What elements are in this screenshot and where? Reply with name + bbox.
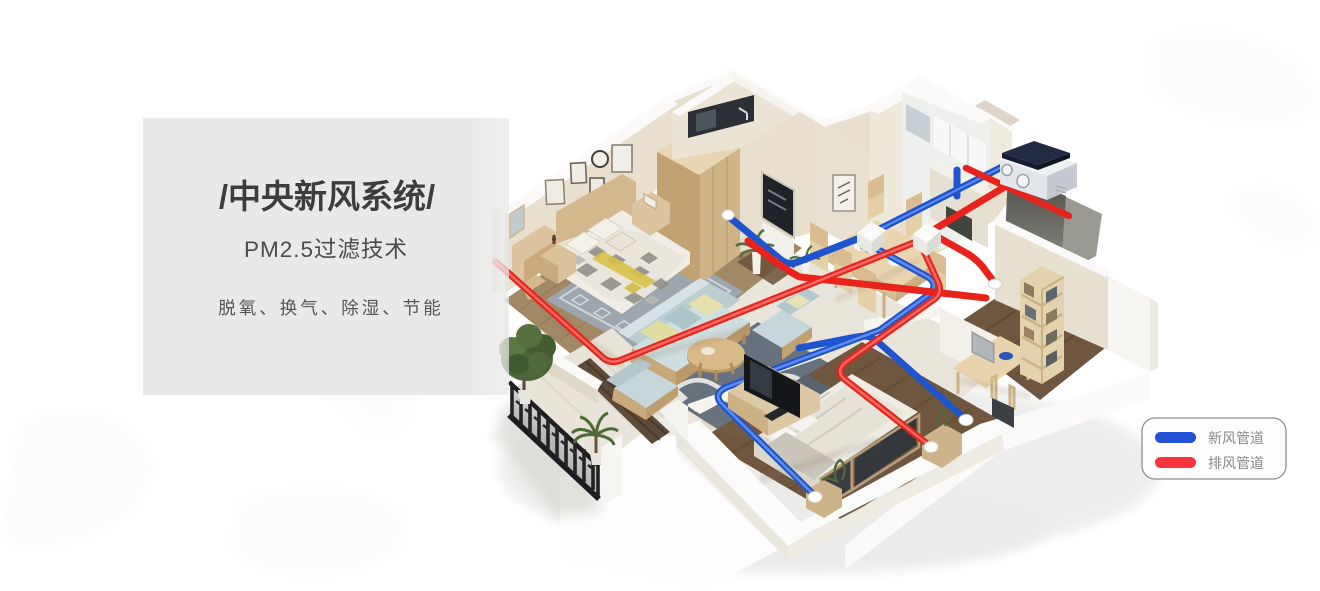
svg-text:排风管道: 排风管道 xyxy=(1208,455,1264,471)
svg-text:/中央新风系统/: /中央新风系统/ xyxy=(219,178,435,215)
svg-text:PM2.5过滤技术: PM2.5过滤技术 xyxy=(244,237,408,262)
svg-text:脱氧、换气、除湿、节能: 脱氧、换气、除湿、节能 xyxy=(218,298,444,318)
svg-text:新风管道: 新风管道 xyxy=(1208,430,1264,446)
